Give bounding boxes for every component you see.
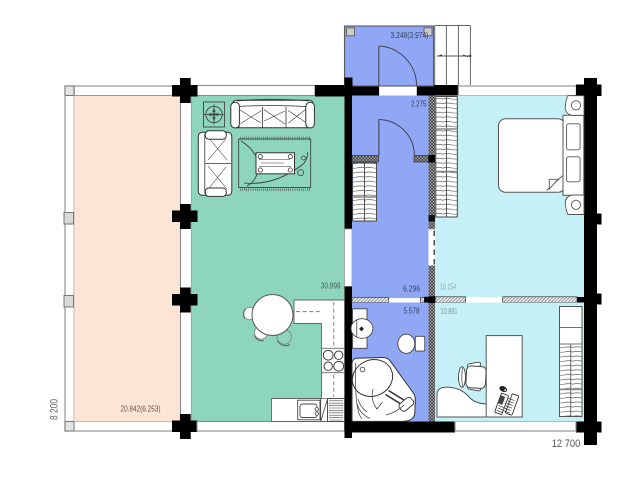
svg-text:6.296: 6.296 <box>403 284 420 294</box>
svg-text:18.154: 18.154 <box>440 281 456 291</box>
svg-text:30.999: 30.999 <box>321 281 341 291</box>
svg-text:3.248(3.974): 3.248(3.974) <box>391 31 429 40</box>
svg-text:5.578: 5.578 <box>404 306 420 316</box>
svg-text:20.842(6.253): 20.842(6.253) <box>121 405 161 414</box>
svg-text:2.275: 2.275 <box>411 99 427 109</box>
svg-text:12 700: 12 700 <box>552 438 581 450</box>
svg-text:10.891: 10.891 <box>441 306 458 316</box>
svg-text:8 200: 8 200 <box>49 399 61 420</box>
